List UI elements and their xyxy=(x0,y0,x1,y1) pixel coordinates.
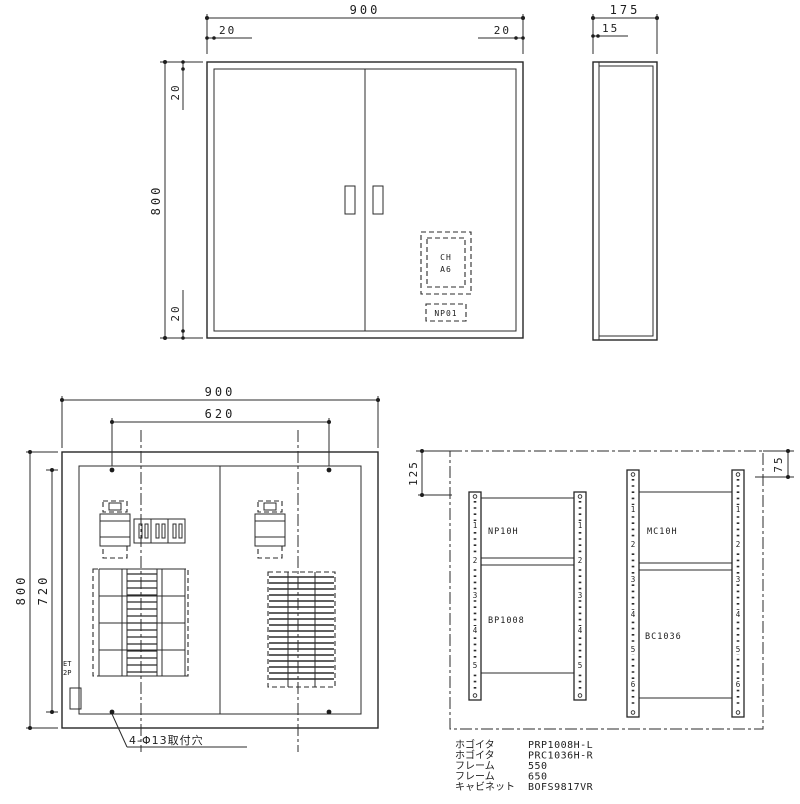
side-outline xyxy=(593,62,657,340)
mounting-hole-br xyxy=(327,710,332,715)
parts-list-row: フレーム650 xyxy=(455,771,548,783)
parts-list-row: キャビネットBOFS9817VR xyxy=(455,781,594,793)
dim-20-top: 20 xyxy=(169,83,182,100)
frame-view: 125 75 1234512345NP10HBP1008123456123456… xyxy=(407,449,794,729)
cutout-inner xyxy=(427,238,465,287)
rail-number: 5 xyxy=(473,661,478,670)
parts-list-row: ホゴイタPRC1036H-R xyxy=(455,749,594,762)
rail-number: 4 xyxy=(473,626,478,635)
part-value: 650 xyxy=(528,772,548,783)
rail-number: 3 xyxy=(578,591,583,600)
right-door-handle xyxy=(373,186,383,214)
nameplate-np01: NP01 xyxy=(426,304,466,321)
internal-view: ET 2P 4-Φ13取付穴 900 620 xyxy=(14,385,380,752)
mounting-frames: 1234512345NP10HBP1008123456123456MC10HBC… xyxy=(469,470,744,717)
ct-strip xyxy=(134,519,185,543)
rail-number: 5 xyxy=(631,645,636,654)
rail-number: 1 xyxy=(473,521,478,530)
rail-number: 3 xyxy=(736,575,741,584)
rail-number: 3 xyxy=(473,591,478,600)
mounting-holes-note: 4-Φ13取付穴 xyxy=(112,714,247,747)
et-2p-device: ET 2P xyxy=(63,660,81,709)
side-inner-line xyxy=(599,66,653,336)
rail-number: 1 xyxy=(578,521,583,530)
cutout-label-a6: A6 xyxy=(440,265,452,274)
dim-175: 175 xyxy=(610,3,641,17)
dim-20-right: 20 xyxy=(494,24,511,37)
side-dimensions: 175 15 xyxy=(591,3,659,54)
dim-75: 75 xyxy=(772,455,785,472)
frame-rail: 12345 xyxy=(469,492,481,700)
rail-number: 1 xyxy=(736,505,741,514)
cutout-outer xyxy=(421,232,471,294)
frame-lower-label: BC1036 xyxy=(645,632,682,642)
part-label: ホゴイタ xyxy=(455,749,495,762)
mounting-hole-tl xyxy=(110,468,115,473)
part-label: フレーム xyxy=(455,771,495,783)
cutout-ch-a6: CH A6 xyxy=(421,232,471,294)
mounting-hole-bl xyxy=(110,710,115,715)
main-breaker-left xyxy=(100,501,130,558)
internal-left-dimensions: 800 720 xyxy=(14,450,58,730)
part-label: ホゴイタ xyxy=(455,738,495,751)
main-breaker-right xyxy=(255,501,285,558)
dim-720: 720 xyxy=(36,575,50,606)
mounting-hole-tr xyxy=(327,468,332,473)
rail-number: 4 xyxy=(631,610,636,619)
cad-drawing-canvas: CH A6 NP01 900 20 20 800 xyxy=(0,0,800,800)
frame-rail: 123456 xyxy=(627,470,639,717)
holes-note-text: 4-Φ13取付穴 xyxy=(129,733,204,747)
rail-number: 5 xyxy=(736,645,741,654)
internal-top-dimensions: 900 620 xyxy=(60,385,380,466)
front-view: CH A6 NP01 900 20 20 800 xyxy=(149,3,525,340)
front-left-dimensions: 800 20 20 xyxy=(149,60,203,340)
rail-number: 6 xyxy=(736,680,741,689)
rail-number: 1 xyxy=(631,505,636,514)
rail-number: 2 xyxy=(578,556,583,565)
side-view: 175 15 xyxy=(591,3,659,340)
rail-number: 4 xyxy=(578,626,583,635)
dim-800: 800 xyxy=(149,185,163,216)
rail-number: 2 xyxy=(631,540,636,549)
cutout-label-ch: CH xyxy=(440,253,452,262)
front-top-dimensions: 900 20 20 xyxy=(205,3,525,54)
frame-lower-label: BP1008 xyxy=(488,616,525,626)
dim-900: 900 xyxy=(350,3,381,17)
dim-125: 125 xyxy=(407,460,420,486)
mounting-frame-0: 1234512345NP10HBP1008 xyxy=(469,492,586,700)
dim-20-bottom: 20 xyxy=(169,304,182,321)
rail-number: 2 xyxy=(473,556,478,565)
frame-rail: 123456 xyxy=(732,470,744,717)
dim-20-left: 20 xyxy=(219,24,236,37)
rail-number: 5 xyxy=(578,661,583,670)
nameplate-label: NP01 xyxy=(434,309,457,318)
rail-number: 3 xyxy=(631,575,636,584)
cad-drawing-page: CH A6 NP01 900 20 20 800 xyxy=(0,0,800,800)
dim-800-internal: 800 xyxy=(14,575,28,606)
part-value: BOFS9817VR xyxy=(528,782,594,793)
left-door-handle xyxy=(345,186,355,214)
rail-number: 2 xyxy=(736,540,741,549)
part-value: 550 xyxy=(528,761,548,772)
rail-number: 4 xyxy=(736,610,741,619)
parts-list-row: フレーム550 xyxy=(455,760,548,772)
part-value: PRC1036H-R xyxy=(528,751,594,762)
dim-900-internal: 900 xyxy=(205,385,236,399)
dim-620: 620 xyxy=(205,407,236,421)
et-label: ET xyxy=(63,660,72,668)
frame-rail: 12345 xyxy=(574,492,586,700)
part-value: PRP1008H-L xyxy=(528,740,593,751)
dim-15: 15 xyxy=(602,22,619,35)
frame-right-dimension: 75 xyxy=(755,449,794,479)
frame-left-dimension: 125 xyxy=(407,449,452,497)
part-label: フレーム xyxy=(455,760,495,772)
2p-label: 2P xyxy=(63,669,71,677)
frame-upper-label: MC10H xyxy=(647,527,678,537)
mounting-frame-1: 123456123456MC10HBC1036 xyxy=(627,470,744,717)
rail-number: 6 xyxy=(631,680,636,689)
parts-list-row: ホゴイタPRP1008H-L xyxy=(455,738,593,751)
part-label: キャビネット xyxy=(455,781,515,793)
frame-upper-label: NP10H xyxy=(488,527,519,537)
parts-list: ホゴイタPRP1008H-LホゴイタPRC1036H-Rフレーム550フレーム6… xyxy=(455,738,594,793)
frame-boundary xyxy=(450,451,763,729)
terminal-grid-right xyxy=(268,572,335,687)
